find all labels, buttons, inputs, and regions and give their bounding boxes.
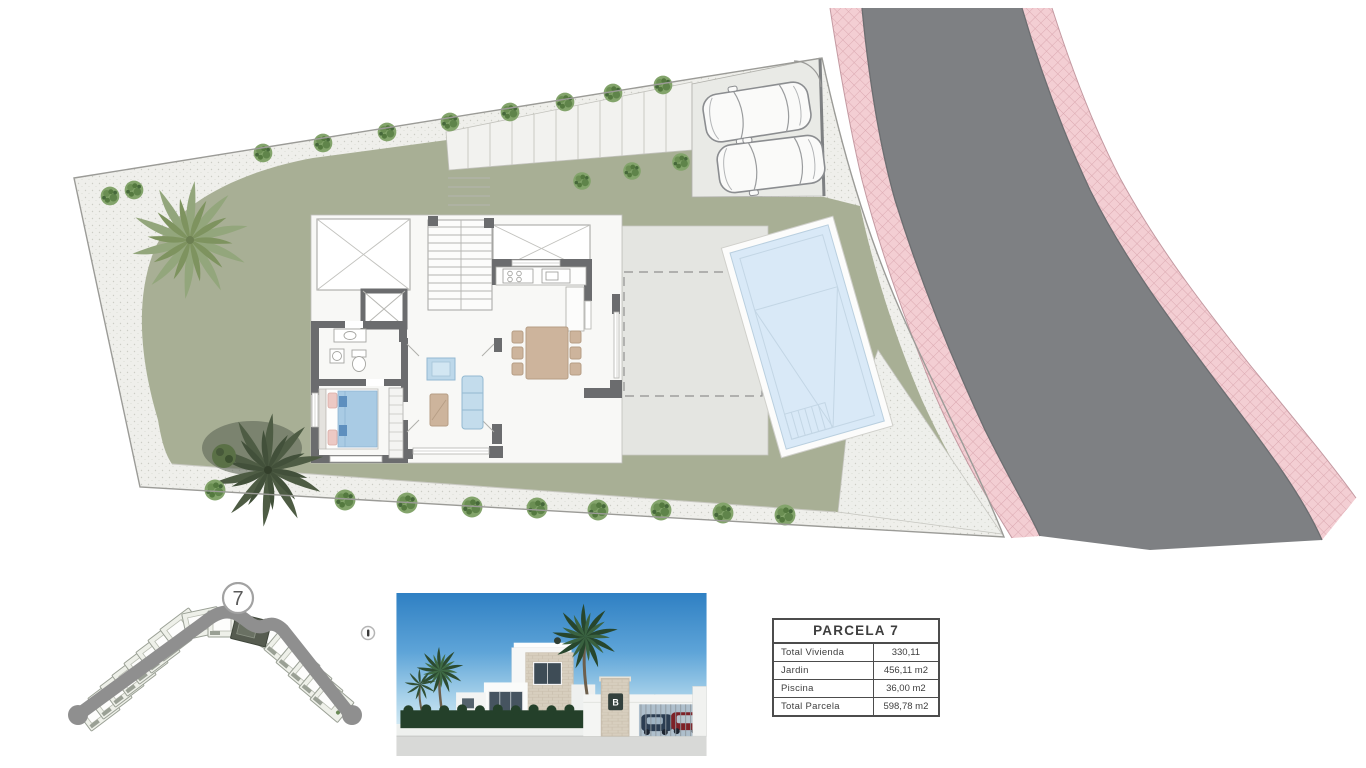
dark-bush-icon	[212, 444, 236, 468]
table-row: Piscina 36,00 m2	[774, 680, 938, 698]
location-diagram: 7	[55, 582, 375, 750]
page: 7	[0, 0, 1366, 768]
table-title: PARCELA 7	[774, 620, 938, 644]
toilet-tank	[352, 350, 366, 357]
sofa	[462, 376, 483, 429]
dining-set	[512, 327, 581, 379]
row-label: Total Parcela	[774, 698, 873, 715]
basin	[344, 332, 356, 340]
house-floor-plan	[311, 215, 622, 463]
bedroom	[319, 388, 403, 458]
row-value: 36,00 m2	[873, 680, 938, 697]
pillow	[328, 393, 337, 408]
row-label: Jardin	[774, 662, 873, 679]
villa-render: B	[396, 593, 707, 756]
row-label: Total Vivienda	[774, 644, 873, 661]
pillow	[328, 430, 337, 445]
parcel-number: 7	[232, 588, 243, 610]
toilet-icon	[353, 357, 366, 372]
parcel-number-badge: 7	[223, 583, 253, 613]
entrance-pillar: B	[599, 676, 631, 736]
headboard	[319, 389, 326, 449]
kitchen-cabinet	[566, 287, 584, 331]
parcel-info-table: PARCELA 7 Total Vivienda 330,11 Jardin 4…	[772, 618, 940, 717]
site-plan	[0, 0, 1366, 566]
brand-logo-letter: B	[612, 697, 619, 707]
dining-table	[526, 327, 568, 379]
row-value: 598,78 m2	[873, 698, 938, 715]
table-row: Jardin 456,11 m2	[774, 662, 938, 680]
row-value: 330,11	[873, 644, 938, 661]
street	[396, 736, 706, 756]
table-row: Total Parcela 598,78 m2	[774, 698, 938, 715]
roof-plant	[554, 637, 561, 644]
table-row: Total Vivienda 330,11	[774, 644, 938, 662]
row-label: Piscina	[774, 680, 873, 697]
staircase	[428, 220, 492, 310]
info-icon	[360, 625, 376, 641]
row-value: 456,11 m2	[873, 662, 938, 679]
